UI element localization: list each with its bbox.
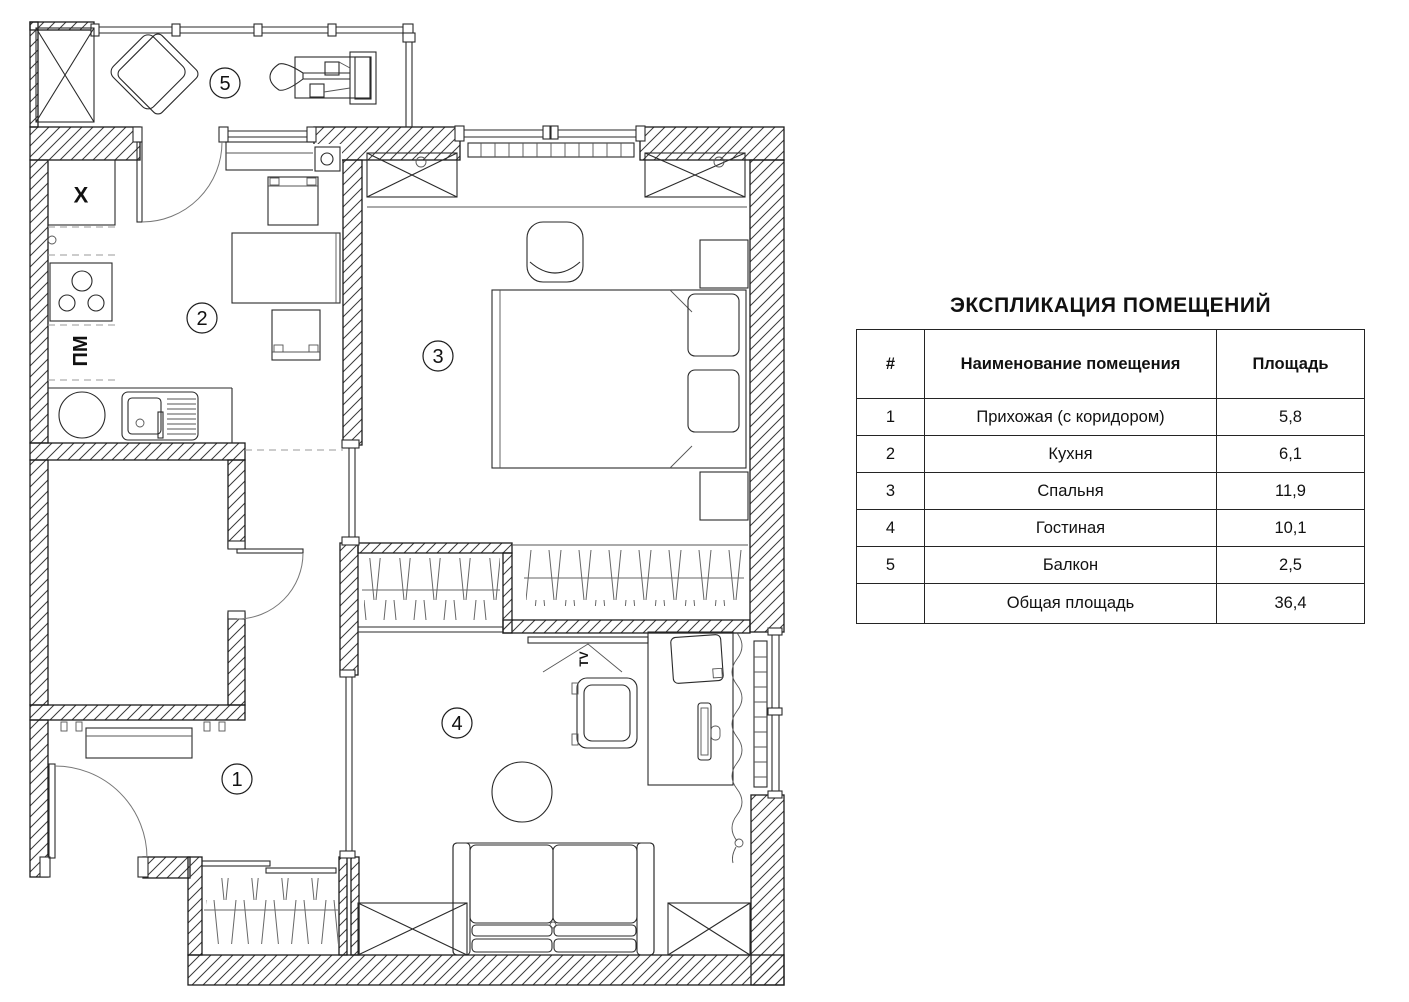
wardrobe-rail [512,545,748,606]
walls [30,22,784,985]
row-number-cell: 2 [857,436,925,473]
closet-sliding-door [266,868,336,873]
balcony: 5 [36,27,376,122]
fridge: X [48,160,115,225]
room-label-hallway: 1 [222,764,252,794]
area-cell: 6,1 [1217,436,1365,473]
desk-chair [698,703,711,760]
room-name-cell: Гостиная [925,510,1217,547]
room-name-cell: Спальня [925,473,1217,510]
area-cell: 5,8 [1217,399,1365,436]
row-number-cell: 3 [857,473,925,510]
boiler [313,144,342,172]
legend-title: ЭКСПЛИКАЦИЯ ПОМЕЩЕНИЙ [856,294,1365,318]
header-name: Наименование помещения [925,330,1217,399]
lounge-chair [108,27,201,120]
bed [492,290,746,468]
table-header-row: # Наименование помещения Площадь [857,330,1365,399]
desk [648,632,733,785]
closet-rail [362,558,500,620]
bathroom-door-leaf [237,549,303,553]
row-number-cell: 5 [857,547,925,584]
door-post [133,127,142,142]
kitchen: X ПМ [48,144,342,443]
cabinet-box [668,903,750,955]
svg-text:X: X [74,183,89,208]
area-cell: 2,5 [1217,547,1365,584]
room-name-cell: Балкон [925,547,1217,584]
hall-closet-rail [204,878,338,944]
area-cell: 10,1 [1217,510,1365,547]
radiator-bedroom [468,143,634,157]
stool [272,310,320,360]
svg-text:5: 5 [219,73,230,95]
stool [268,177,318,225]
closet-sliding-door [202,861,270,866]
laptop [670,634,723,683]
floor-plan: 5 X ПМ [0,0,800,1002]
radiator-living [754,641,767,787]
living-room: TV [358,632,750,955]
room-legend: ЭКСПЛИКАЦИЯ ПОМЕЩЕНИЙ # Наименование пом… [856,294,1365,624]
explication-table: # Наименование помещения Площадь 1 Прихо… [856,329,1365,624]
tv: TV [528,637,648,672]
table-row: 5 Балкон 2,5 [857,547,1365,584]
table-row: 3 Спальня 11,9 [857,473,1365,510]
bedroom-chair [527,222,583,282]
table-row: 2 Кухня 6,1 [857,436,1365,473]
nightstand [700,472,748,520]
exercise-machine [270,52,376,104]
room-label-bedroom: 3 [423,341,453,371]
header-num: # [857,330,925,399]
stove [50,263,112,321]
screenshot-root: 5 X ПМ [0,0,1409,1002]
area-cell: 11,9 [1217,473,1365,510]
pillow [688,370,739,432]
dishwasher-label: ПМ [70,335,92,366]
room-name-cell: Кухня [925,436,1217,473]
svg-text:1: 1 [231,769,242,791]
room-label-kitchen: 2 [187,303,217,333]
washing-machine [59,392,105,438]
doors [40,127,503,877]
kitchen-table [232,233,340,303]
table-total-row: Общая площадь 36,4 [857,584,1365,624]
room-label-balcony: 5 [210,68,240,98]
pillow [688,294,739,356]
header-area: Площадь [1217,330,1365,399]
table-row: 1 Прихожая (с коридором) 5,8 [857,399,1365,436]
storage-box [36,28,94,122]
console-table [61,722,225,758]
row-number-cell: 4 [857,510,925,547]
svg-text:3: 3 [432,346,443,368]
area-cell: 36,4 [1217,584,1365,624]
room-label-living: 4 [442,708,472,738]
armchair [572,678,637,748]
row-number-cell: 1 [857,399,925,436]
entrance-door-leaf [49,764,55,858]
svg-text:4: 4 [451,713,462,735]
row-number-cell [857,584,925,624]
svg-text:2: 2 [196,308,207,330]
room-name-cell: Прихожая (с коридором) [925,399,1217,436]
cabinet-box [358,903,467,955]
svg-text:TV: TV [577,651,591,666]
round-table [492,762,552,822]
table-row: 4 Гостиная 10,1 [857,510,1365,547]
nightstand [700,240,748,288]
sofa [453,843,654,955]
room-name-cell: Общая площадь [925,584,1217,624]
curtain [732,633,743,863]
kitchen-sink [122,392,198,440]
